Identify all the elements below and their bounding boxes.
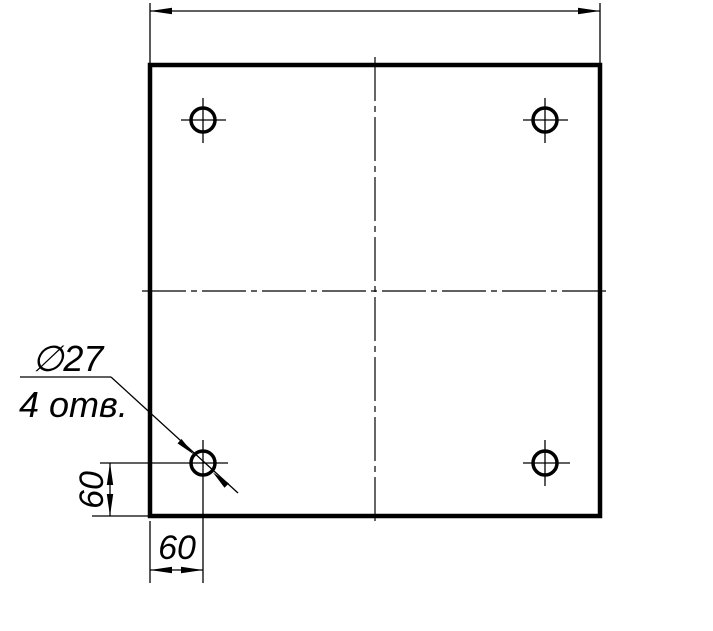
leader-note: ∅27 4 отв. — [19, 338, 238, 493]
dim-top-arrow-right — [578, 8, 600, 14]
plate-drawing-svg: 60 60 ∅27 4 отв. — [0, 0, 713, 631]
drawing-canvas: 60 60 ∅27 4 отв. — [0, 0, 713, 631]
leader-diagonal-line — [111, 377, 238, 493]
leader-diameter-label: ∅27 — [32, 338, 105, 379]
dimension-hole-offset-x: 60 — [150, 521, 203, 583]
dimension-top-width — [150, 3, 600, 63]
dim-bottom-arrow-left — [150, 567, 172, 573]
leader-arrow-lower — [213, 472, 229, 488]
dim-bottom-value: 60 — [158, 529, 196, 567]
dimension-hole-offset-y: 60 — [73, 463, 150, 516]
holes — [100, 98, 570, 583]
dim-left-value: 60 — [73, 471, 111, 509]
leader-count-label: 4 отв. — [19, 384, 128, 425]
dim-bottom-arrow-right — [181, 567, 203, 573]
dim-top-arrow-left — [150, 8, 172, 14]
leader-arrow-upper — [178, 439, 195, 455]
